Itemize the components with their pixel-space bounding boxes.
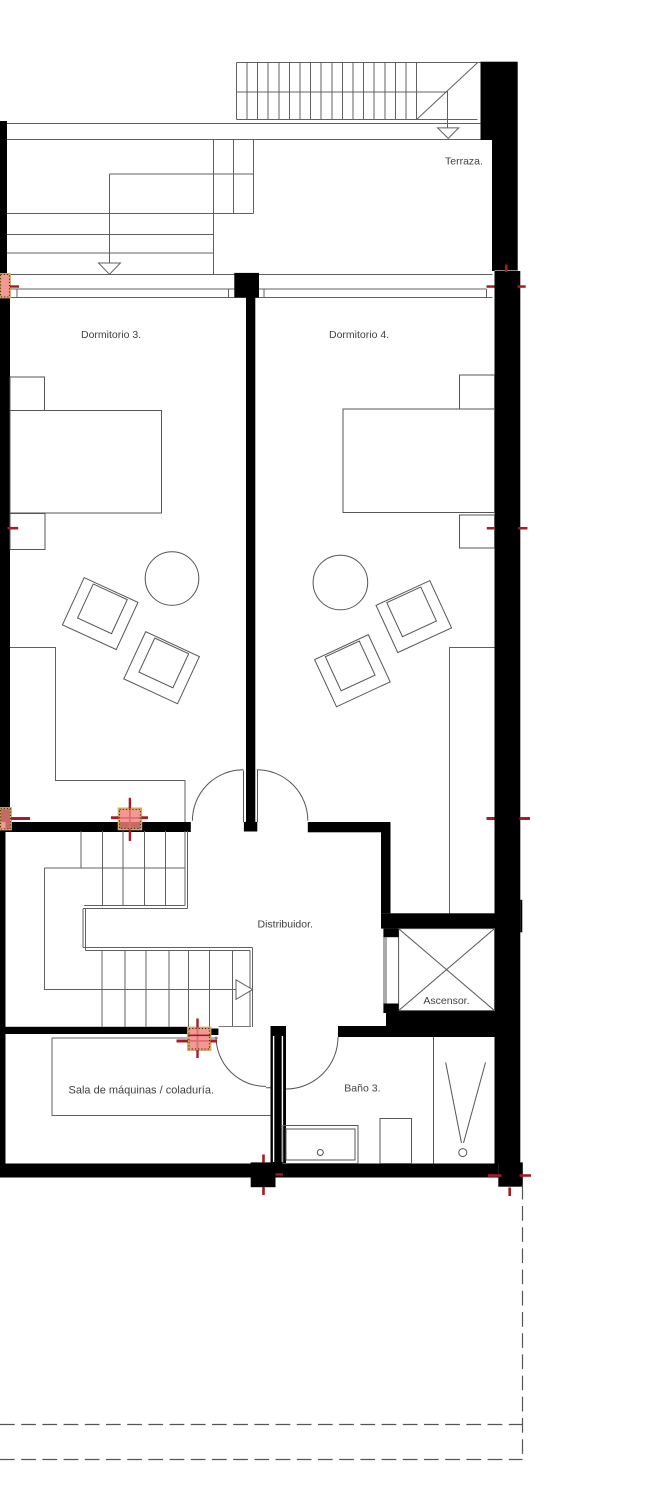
svg-text:Terraza.: Terraza. bbox=[445, 156, 483, 168]
svg-text:Ascensor.: Ascensor. bbox=[423, 995, 469, 1007]
svg-text:Dormitorio 4.: Dormitorio 4. bbox=[329, 329, 389, 341]
svg-text:Baño 3.: Baño 3. bbox=[344, 1083, 380, 1095]
svg-text:Dormitorio 3.: Dormitorio 3. bbox=[81, 329, 141, 341]
svg-text:Sala de máquinas / coladuría.: Sala de máquinas / coladuría. bbox=[69, 1085, 215, 1097]
svg-text:Distribuidor.: Distribuidor. bbox=[258, 919, 313, 931]
